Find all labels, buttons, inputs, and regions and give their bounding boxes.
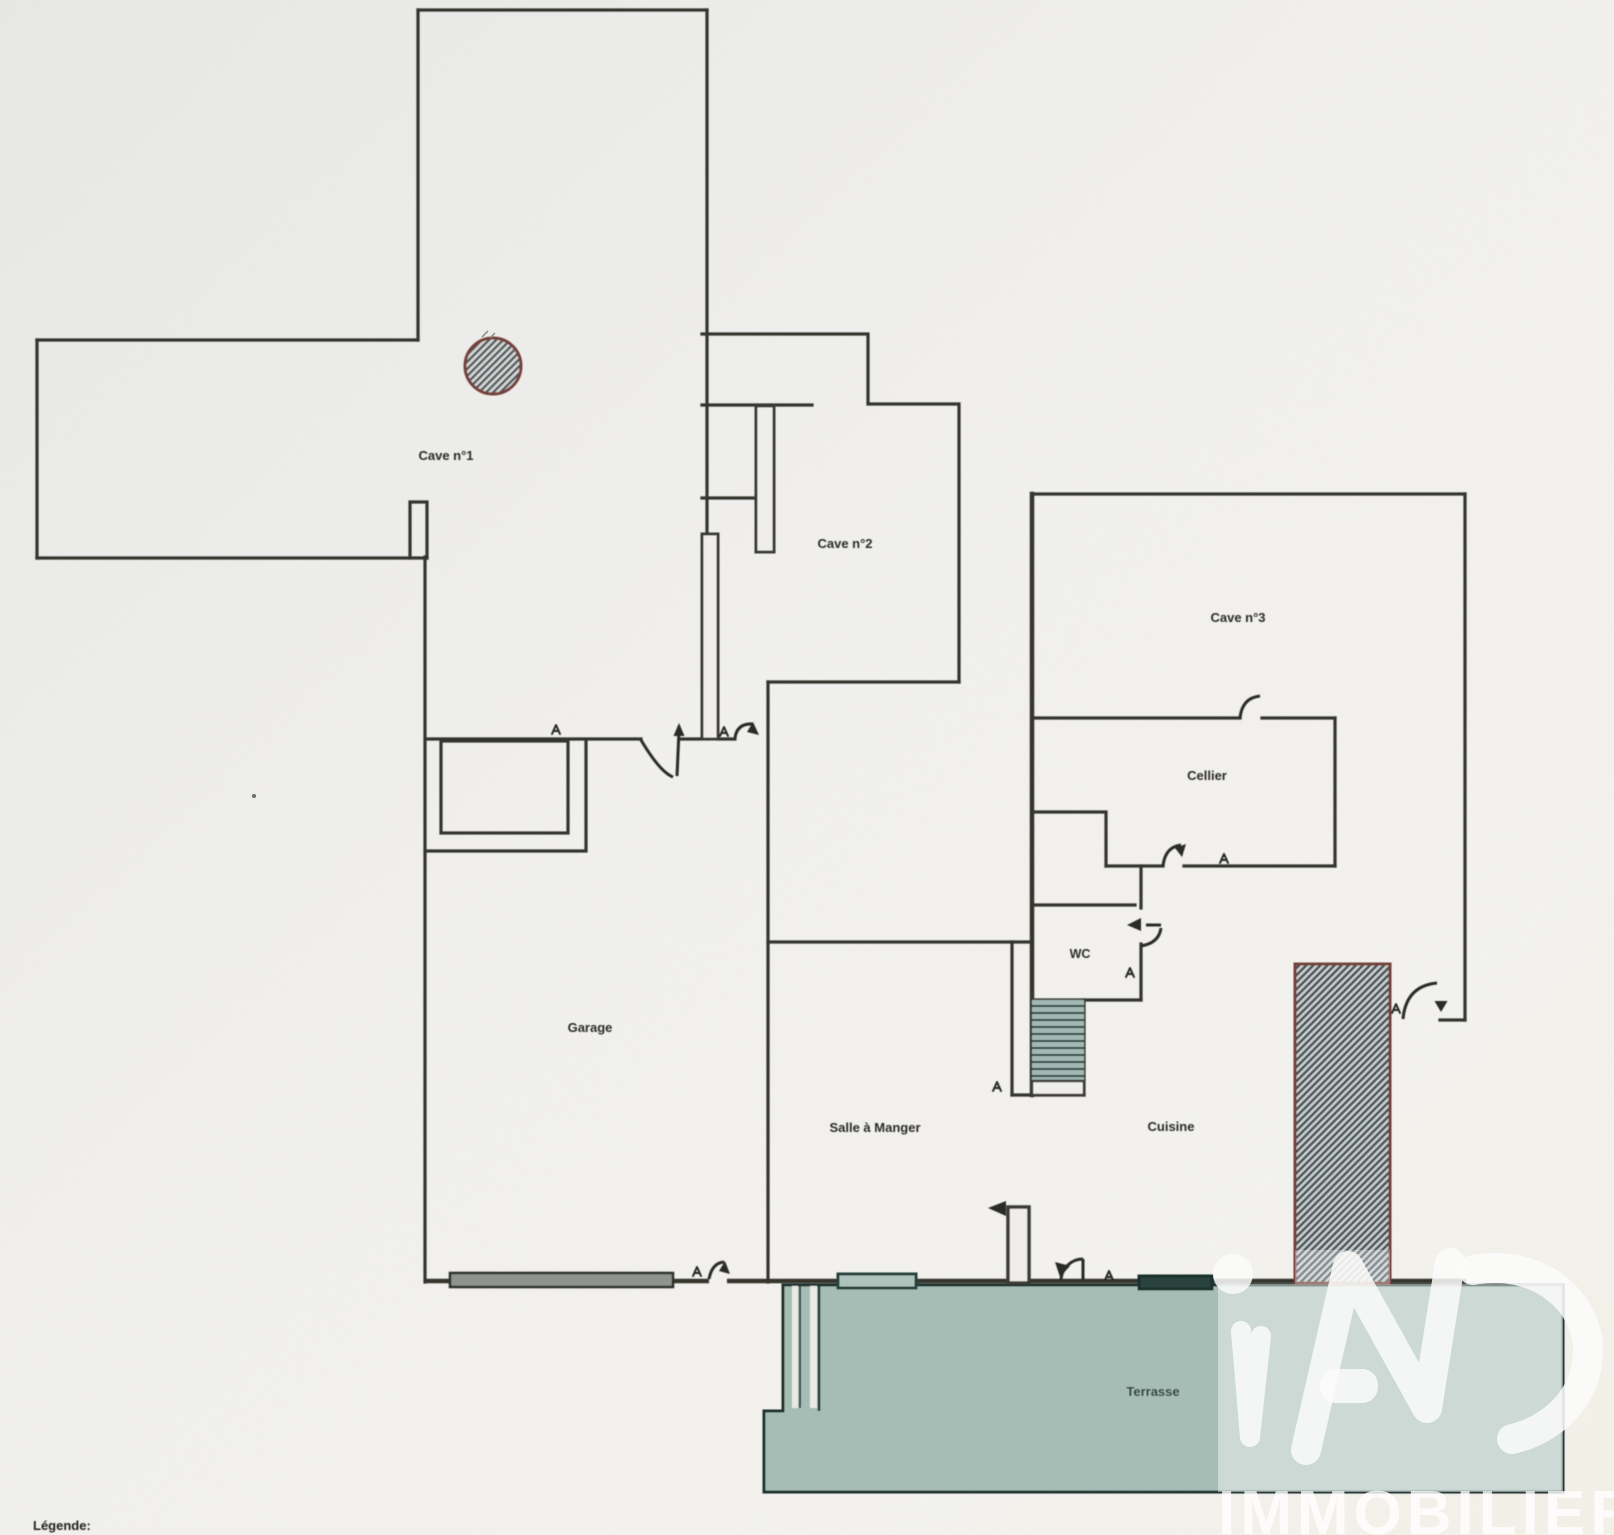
svg-text:Cellier: Cellier <box>1187 768 1227 783</box>
svg-text:WC: WC <box>1070 947 1091 961</box>
svg-text:Cuisine: Cuisine <box>1148 1119 1195 1134</box>
svg-text:Cave n°3: Cave n°3 <box>1210 610 1265 625</box>
svg-text:Cave n°2: Cave n°2 <box>817 536 872 551</box>
svg-text:Légende:: Légende: <box>33 1518 91 1533</box>
svg-text:Garage: Garage <box>568 1020 613 1035</box>
svg-text:Terrasse: Terrasse <box>1126 1384 1179 1399</box>
svg-text:IMMOBILIER: IMMOBILIER <box>1218 1479 1614 1535</box>
svg-text:Salle à Manger: Salle à Manger <box>829 1120 920 1135</box>
svg-text:Cave n°1: Cave n°1 <box>418 448 473 463</box>
